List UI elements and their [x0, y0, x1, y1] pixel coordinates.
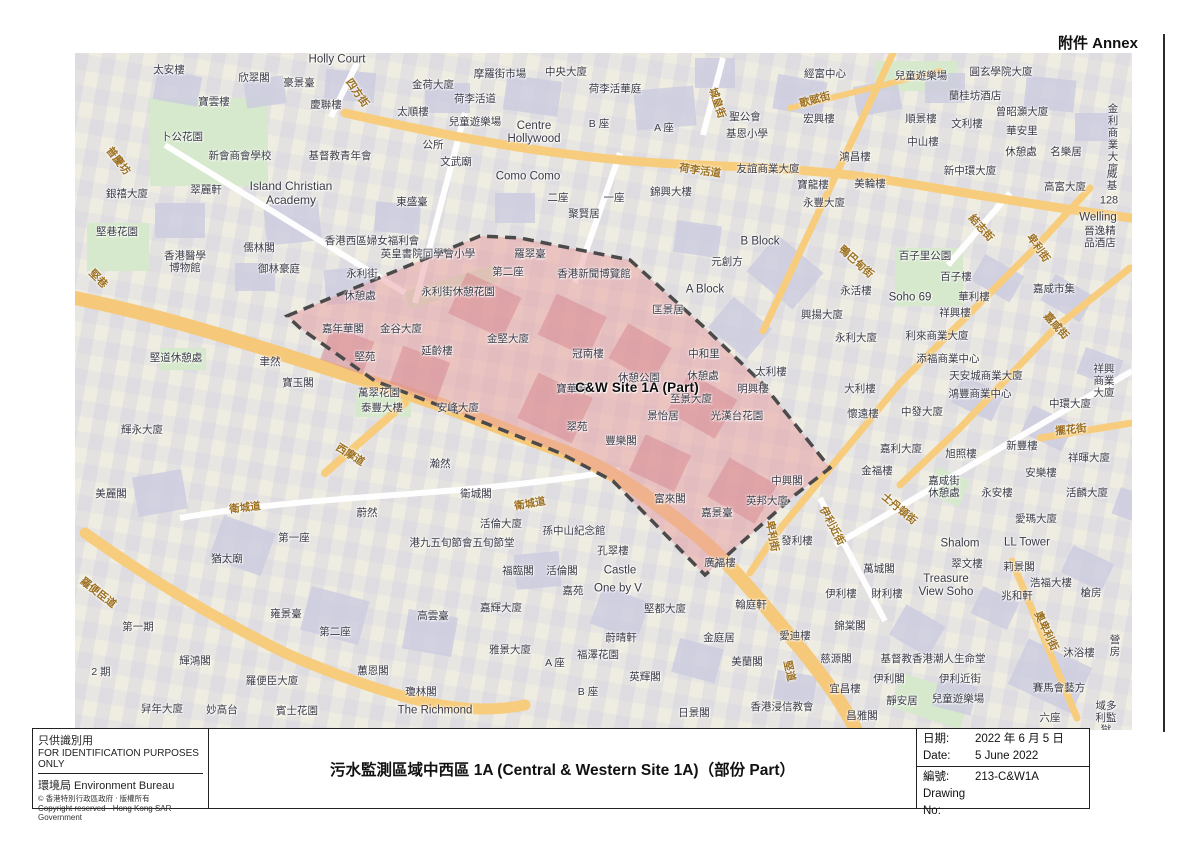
- date-row-en: Date: 5 June 2022: [923, 748, 1083, 765]
- number-row-zh: 編號: 213-C&W1A: [923, 769, 1083, 786]
- map-canvas[interactable]: 太安樓欣翠閣豪景臺Holly Court四方街金荷大廈寶雲樓慶聯樓太順樓荷李活道…: [75, 53, 1132, 730]
- id-note-en: FOR IDENTIFICATION PURPOSES ONLY: [38, 748, 203, 774]
- id-note-zh: 只供識別用: [38, 732, 203, 748]
- date-row-zh: 日期: 2022 年 6 月 5 日: [923, 731, 1083, 748]
- identification-box: 只供識別用 FOR IDENTIFICATION PURPOSES ONLY 環…: [33, 729, 209, 808]
- divider: [917, 766, 1089, 767]
- date-number-box: 日期: 2022 年 6 月 5 日 Date: 5 June 2022 編號:…: [916, 729, 1089, 808]
- number-row-en: Drawing No:: [923, 786, 1083, 819]
- map-base-graphics: [75, 53, 1132, 730]
- bureau-name: 環境局 Environment Bureau: [38, 777, 203, 793]
- drawing-page: 附件 Annex: [0, 0, 1200, 847]
- annex-heading: 附件 Annex: [1058, 32, 1138, 53]
- copyright-zh: © 香港特別行政區政府 ‧ 版權所有: [38, 793, 203, 804]
- copyright-en: Copyright reserved - Hong Kong SAR Gover…: [38, 804, 203, 822]
- drawing-title: 污水監測區域中西區 1A (Central & Western Site 1A)…: [209, 729, 916, 808]
- page-border-line: [1163, 34, 1165, 732]
- title-block: 只供識別用 FOR IDENTIFICATION PURPOSES ONLY 環…: [32, 728, 1090, 809]
